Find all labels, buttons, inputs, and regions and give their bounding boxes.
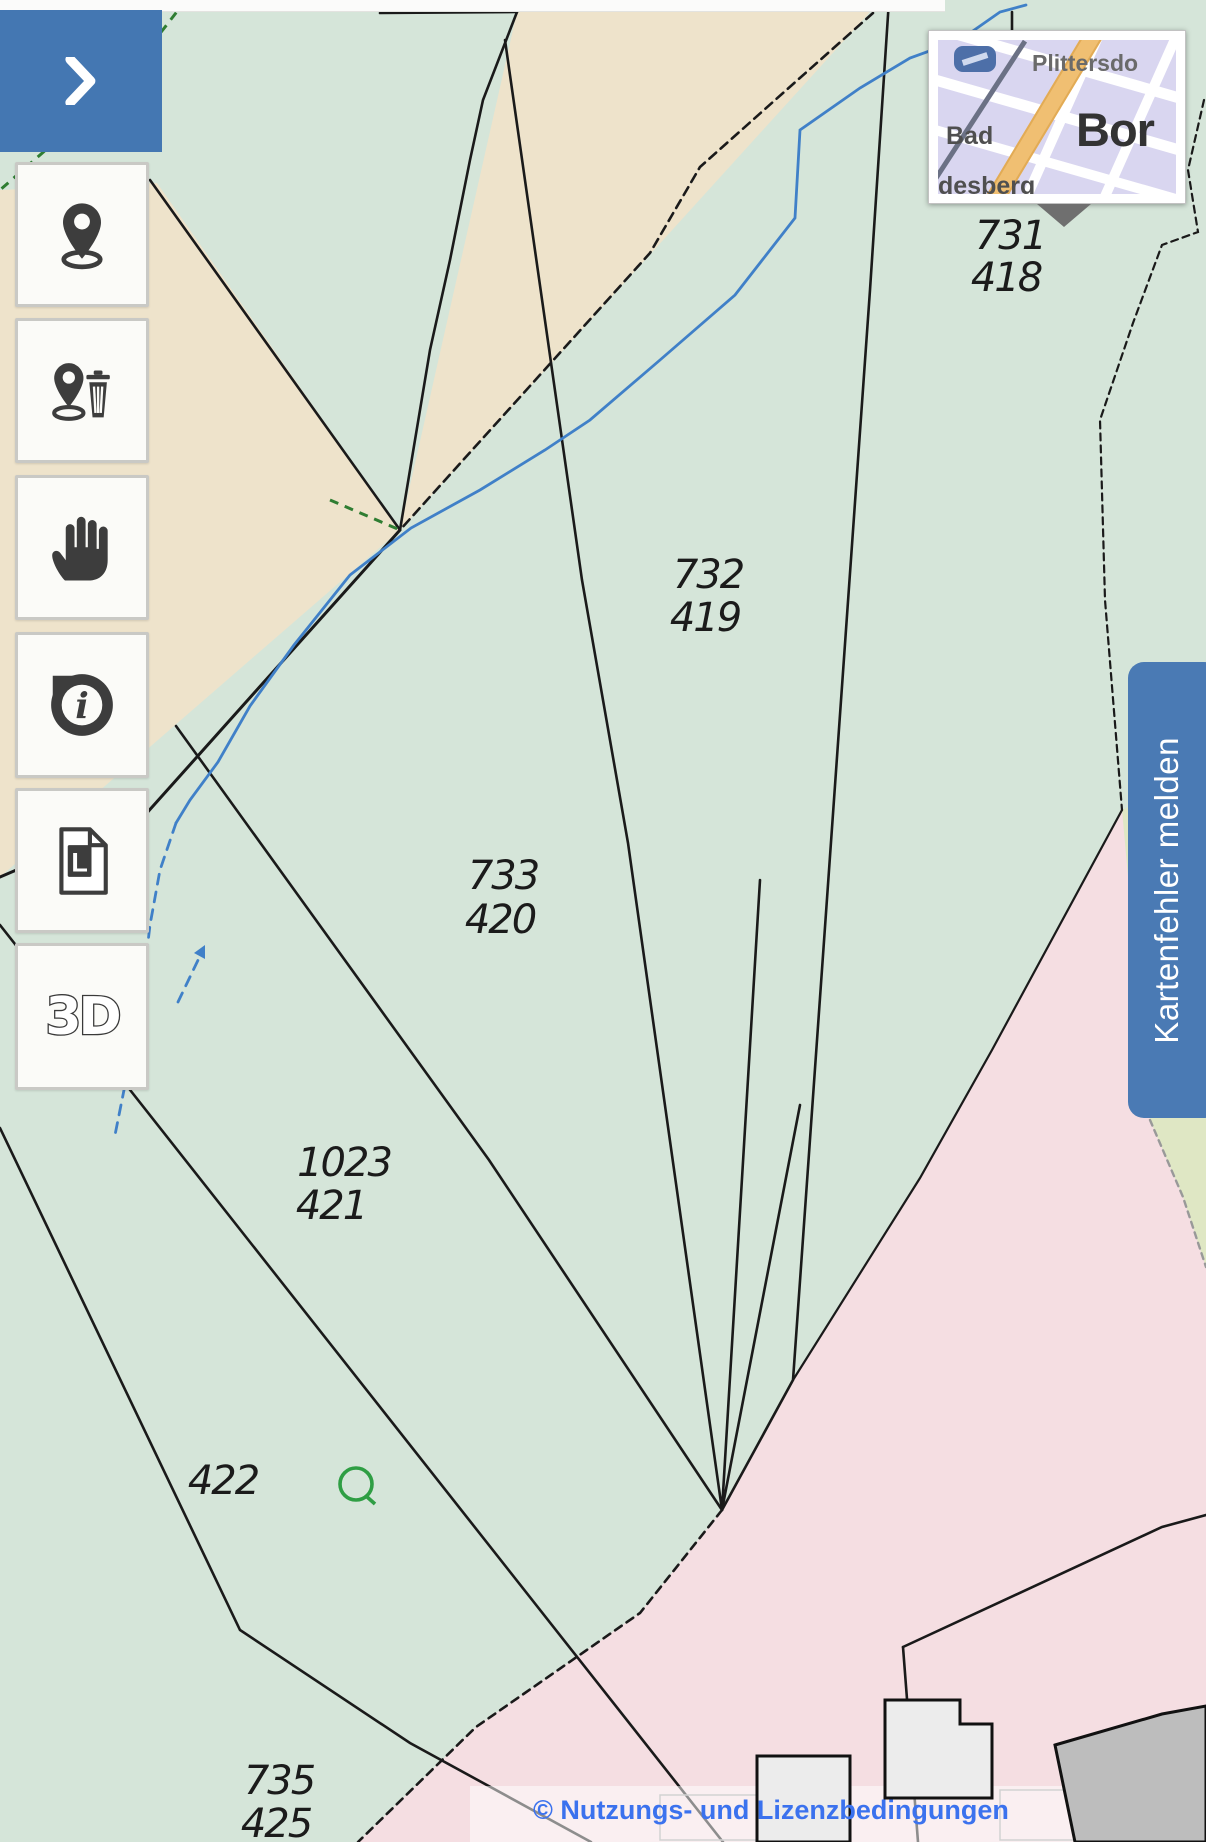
motorway-symbol-icon — [954, 46, 996, 72]
parcel-label: 733 — [468, 853, 538, 899]
set-marker-button[interactable] — [15, 162, 149, 307]
parcel-label: 425 — [241, 1801, 311, 1842]
overview-label-bad: Bad — [946, 122, 993, 151]
parcel-label: 731 — [975, 213, 1045, 259]
svg-text:L: L — [71, 847, 87, 877]
expand-panel-button[interactable] — [0, 10, 162, 152]
svg-text:3D: 3D — [45, 987, 119, 1047]
3d-icon: 3D — [27, 982, 137, 1052]
report-map-error-button[interactable]: Kartenfehler melden — [1128, 662, 1206, 1118]
parcel-label: 419 — [670, 595, 740, 641]
overview-label-bonn: Bor — [1076, 102, 1154, 157]
legend-document-icon: L — [44, 823, 120, 899]
remove-marker-button[interactable] — [15, 318, 149, 463]
location-marker-delete-icon — [41, 356, 123, 426]
parcel-label: 732 — [673, 552, 743, 598]
overview-map[interactable]: Plittersdo Bad desberg Bor — [928, 30, 1186, 204]
report-map-error-label: Kartenfehler melden — [1148, 737, 1186, 1044]
parcel-label: 1023 — [297, 1140, 391, 1186]
parcel-label: 418 — [971, 255, 1041, 301]
parcel-label: 421 — [296, 1183, 366, 1229]
legend-button[interactable]: L — [15, 788, 149, 933]
license-terms-link[interactable]: © Nutzungs- und Lizenzbedingungen — [533, 1795, 1009, 1826]
info-icon: i — [43, 666, 121, 744]
overview-label-godesberg: desberg — [938, 172, 1035, 194]
parcel-label: 422 — [188, 1458, 258, 1504]
overview-label-plittersdorf: Plittersdo — [1032, 50, 1138, 77]
svg-text:i: i — [75, 685, 89, 727]
map-viewport[interactable]: 731 418 732 419 733 420 1023 421 422 735… — [0, 0, 1206, 1842]
overview-map-image: Plittersdo Bad desberg Bor — [938, 40, 1176, 194]
chevron-right-icon — [64, 57, 98, 105]
parcel-label: 420 — [465, 897, 535, 943]
overview-collapse-arrow-icon[interactable] — [1037, 204, 1091, 227]
view-3d-button[interactable]: 3D — [15, 943, 149, 1090]
location-marker-icon — [44, 197, 120, 273]
feature-info-button[interactable]: i — [15, 632, 149, 778]
pan-button[interactable] — [15, 475, 149, 620]
parcel-label: 735 — [244, 1758, 314, 1804]
pan-hand-icon — [43, 509, 121, 587]
